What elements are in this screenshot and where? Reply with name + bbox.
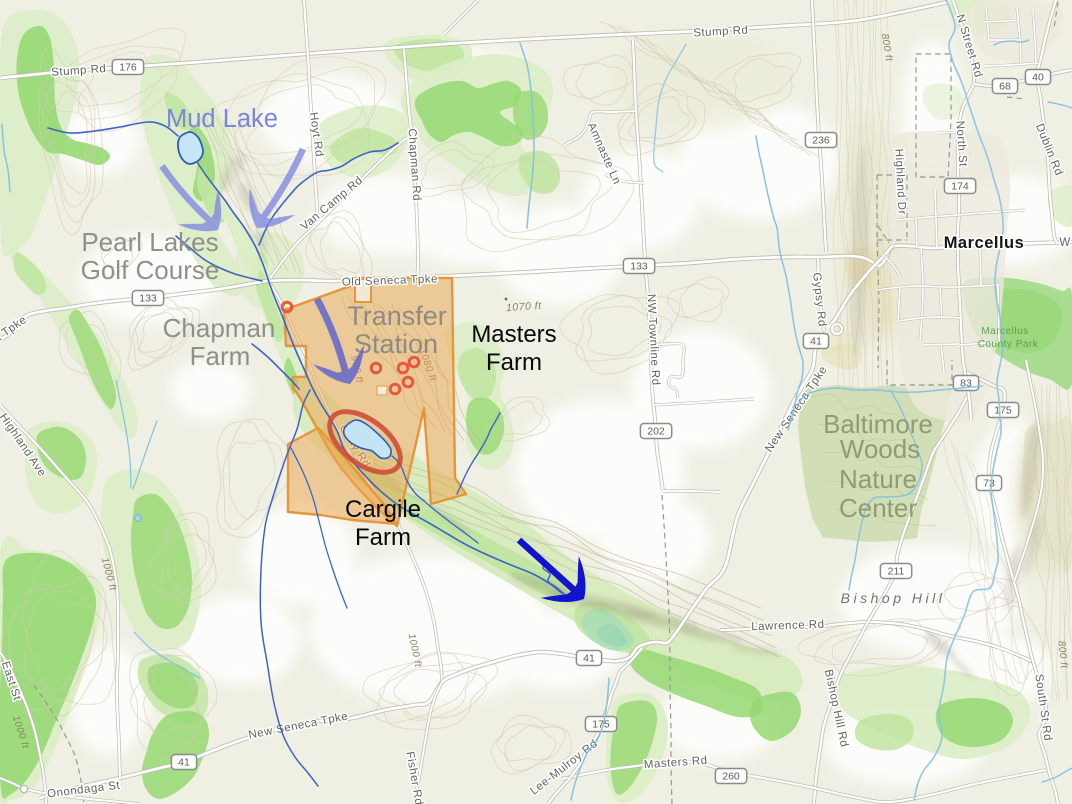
svg-text:133: 133 — [139, 293, 157, 305]
svg-text:41: 41 — [178, 757, 190, 769]
svg-text:Station: Station — [354, 329, 438, 359]
svg-text:Bishop Hill: Bishop Hill — [841, 590, 946, 606]
svg-text:175: 175 — [994, 405, 1012, 417]
svg-text:Transfer: Transfer — [347, 301, 447, 331]
svg-text:Cargile: Cargile — [345, 496, 421, 523]
svg-text:Center: Center — [839, 493, 917, 523]
svg-text:202: 202 — [647, 426, 665, 438]
svg-text:41: 41 — [583, 653, 595, 665]
svg-text:260: 260 — [722, 771, 740, 783]
svg-text:Masters: Masters — [471, 321, 556, 348]
svg-text:1070 ft: 1070 ft — [506, 300, 543, 314]
svg-text:Farm: Farm — [190, 341, 251, 371]
svg-text:174: 174 — [951, 181, 969, 193]
svg-text:Pearl Lakes: Pearl Lakes — [81, 227, 218, 257]
svg-text:W: W — [1059, 237, 1070, 249]
svg-text:Marcellus: Marcellus — [944, 234, 1025, 252]
svg-text:41: 41 — [810, 336, 822, 348]
svg-text:Marcellus: Marcellus — [981, 326, 1028, 337]
svg-text:176: 176 — [119, 62, 137, 74]
svg-text:236: 236 — [812, 135, 830, 147]
svg-text:Farm: Farm — [355, 524, 411, 551]
svg-text:Golf Course: Golf Course — [81, 255, 220, 285]
svg-text:Woods: Woods — [840, 434, 920, 464]
svg-text:County Park: County Park — [978, 339, 1039, 350]
svg-text:Nature: Nature — [839, 464, 917, 494]
svg-text:211: 211 — [888, 566, 905, 578]
svg-text:Lawrence Rd: Lawrence Rd — [751, 619, 825, 634]
svg-text:Farm: Farm — [486, 349, 542, 376]
svg-text:Chapman: Chapman — [163, 313, 276, 343]
svg-text:133: 133 — [630, 261, 648, 273]
svg-text:40: 40 — [1032, 72, 1044, 84]
svg-text:Mud Lake: Mud Lake — [166, 105, 278, 133]
svg-text:68: 68 — [999, 81, 1011, 93]
svg-text:73: 73 — [983, 478, 995, 490]
